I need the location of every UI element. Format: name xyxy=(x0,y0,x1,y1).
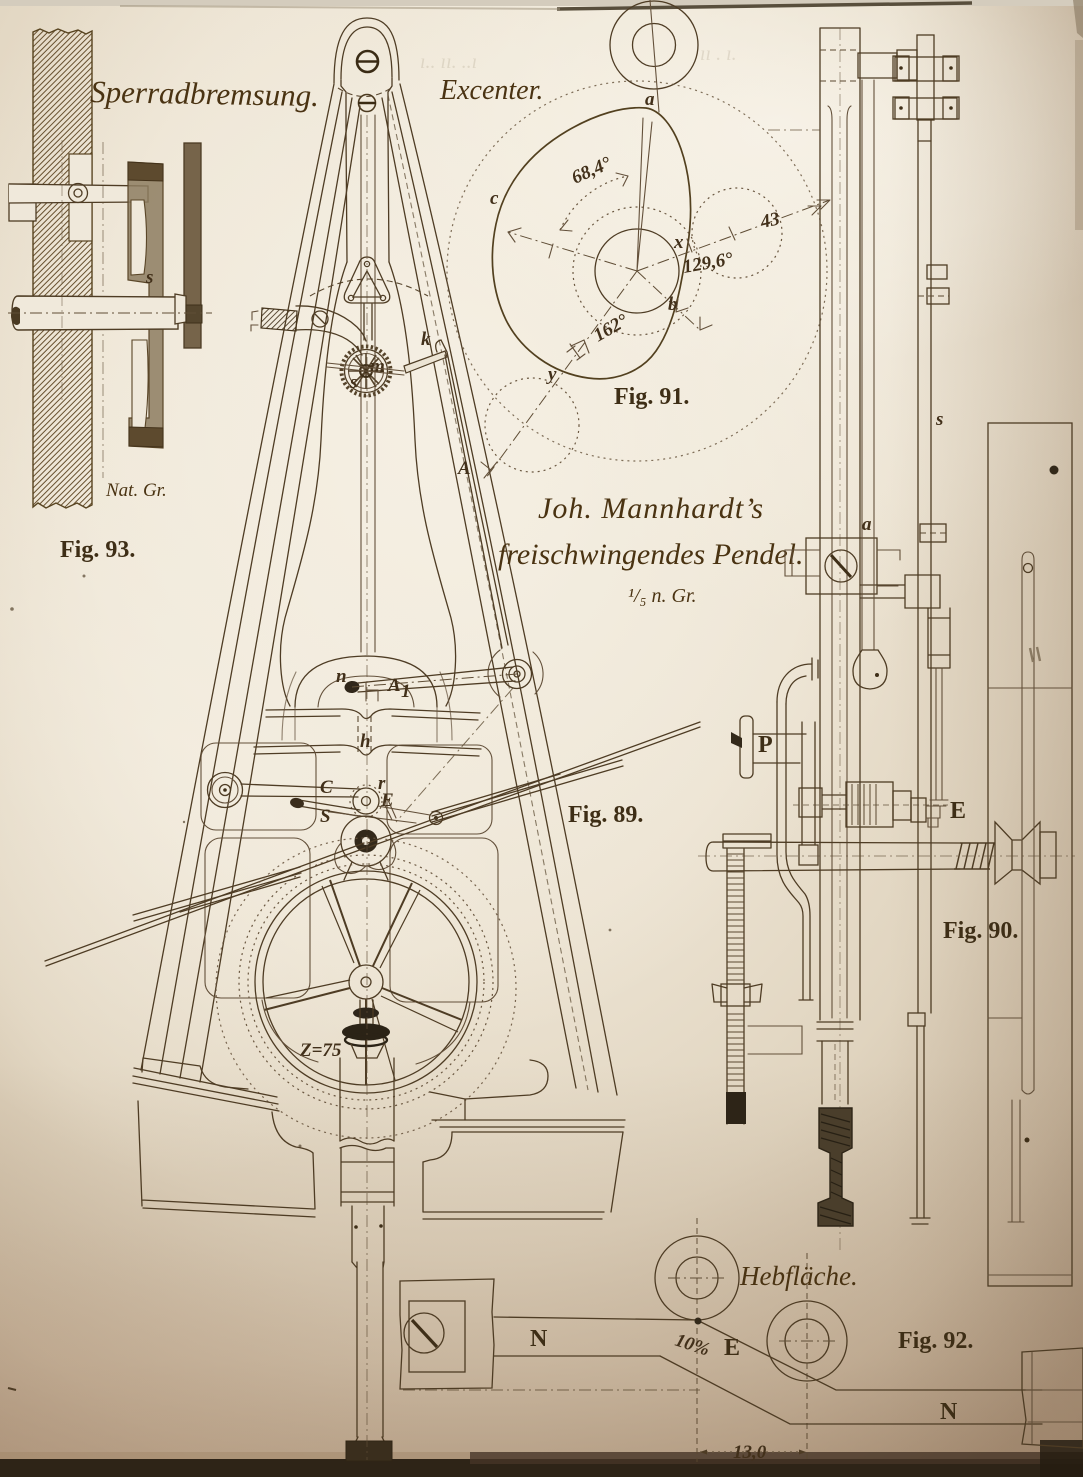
svg-text:Fig. 92.: Fig. 92. xyxy=(898,1328,973,1354)
svg-text:Nat. Gr.: Nat. Gr. xyxy=(105,480,167,501)
svg-text:Hebfläche.: Hebfläche. xyxy=(739,1261,858,1291)
svg-text:x: x xyxy=(673,232,684,253)
svg-text:C: C xyxy=(320,777,333,798)
svg-text:s: s xyxy=(349,372,357,393)
svg-text:E: E xyxy=(950,798,966,824)
svg-text:h: h xyxy=(360,731,371,752)
svg-text:13,0: 13,0 xyxy=(733,1442,767,1463)
svg-text:A: A xyxy=(387,675,401,696)
svg-text:ıı . ı.: ıı . ı. xyxy=(700,43,737,65)
svg-text:Excenter.: Excenter. xyxy=(439,75,543,106)
svg-text:1: 1 xyxy=(401,681,411,702)
svg-text:b: b xyxy=(668,294,678,315)
svg-text:s: s xyxy=(145,267,153,288)
svg-text:freischwingendes Pendel.: freischwingendes Pendel. xyxy=(498,538,803,571)
svg-text:N: N xyxy=(940,1399,958,1425)
svg-text:S: S xyxy=(320,806,331,827)
svg-text:y: y xyxy=(546,364,557,385)
svg-text:c: c xyxy=(490,188,499,209)
svg-text:Fig. 93.: Fig. 93. xyxy=(60,537,135,563)
svg-text:Joh. Mannhardt’s: Joh. Mannhardt’s xyxy=(538,492,764,525)
svg-text:Fig. 91.: Fig. 91. xyxy=(614,384,689,410)
svg-text:a: a xyxy=(862,514,872,535)
svg-text:P: P xyxy=(758,732,773,758)
svg-text:Fig. 89.: Fig. 89. xyxy=(568,802,643,828)
svg-text:¹/₅ n. Gr.: ¹/₅ n. Gr. xyxy=(628,585,697,607)
svg-text:Sperradbremsung.: Sperradbremsung. xyxy=(90,74,319,113)
svg-text:ı.. ıı. ..ı: ı.. ıı. ..ı xyxy=(420,51,477,73)
svg-text:A: A xyxy=(457,458,471,479)
svg-text:N: N xyxy=(530,1326,548,1352)
svg-text:a: a xyxy=(645,89,655,110)
svg-text:n: n xyxy=(336,666,347,687)
svg-text:m: m xyxy=(370,356,385,377)
svg-text:Fig. 90.: Fig. 90. xyxy=(943,918,1018,944)
svg-text:k: k xyxy=(421,329,431,350)
svg-text:E: E xyxy=(724,1335,740,1361)
svg-text:s: s xyxy=(935,409,943,430)
